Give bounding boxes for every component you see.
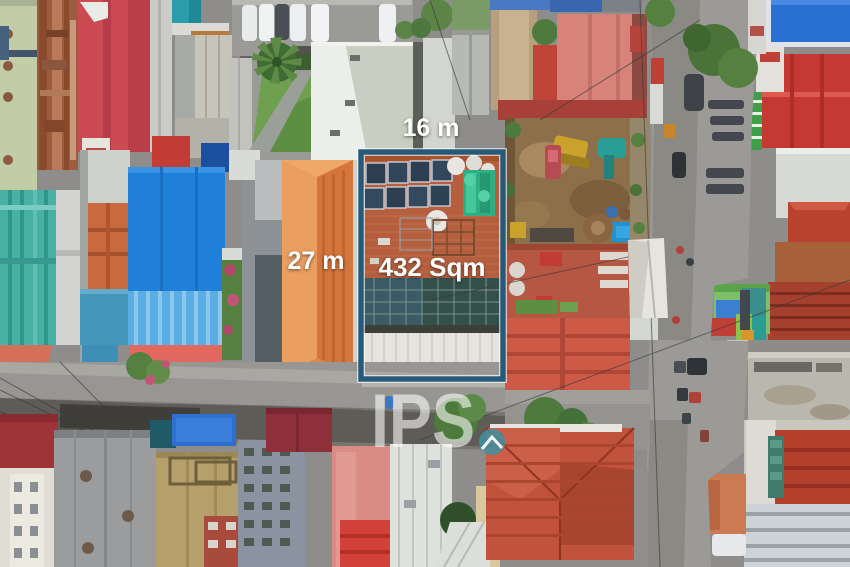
svg-text:16 m: 16 m [403, 114, 460, 142]
svg-text:432 Sqm: 432 Sqm [379, 252, 486, 282]
svg-text:IPS: IPS [371, 379, 475, 464]
svg-text:27 m: 27 m [288, 247, 345, 275]
